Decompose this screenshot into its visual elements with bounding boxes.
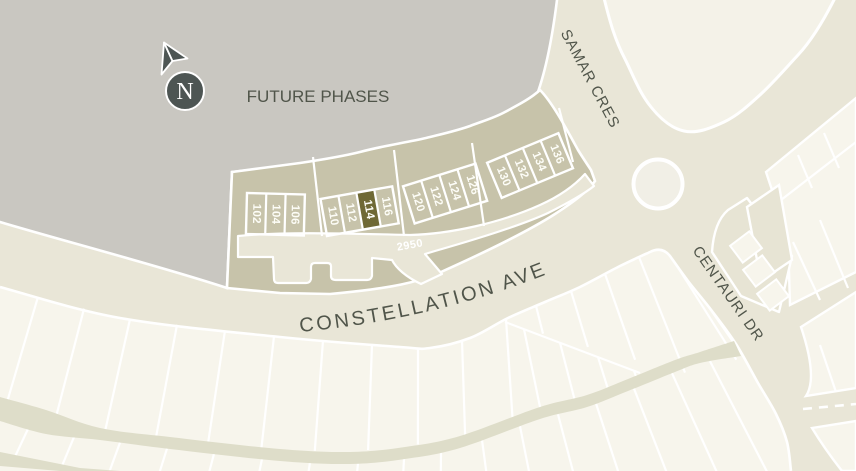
svg-text:N: N [176,79,193,105]
svg-text:106: 106 [288,205,301,225]
svg-text:104: 104 [269,204,282,225]
svg-text:102: 102 [250,204,263,224]
svg-text:FUTURE PHASES: FUTURE PHASES [247,87,390,106]
